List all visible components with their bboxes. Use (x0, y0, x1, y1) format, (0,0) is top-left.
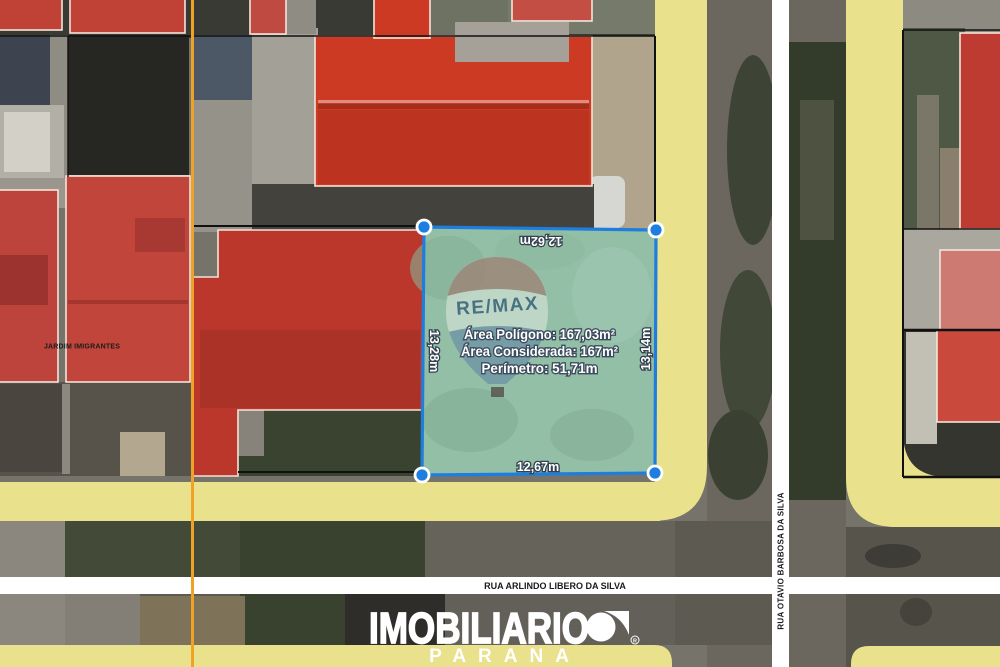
svg-text:Área Considerada: 167m²: Área Considerada: 167m² (461, 344, 618, 359)
svg-text:RUA OTAVIO BARBOSA DA SILVA: RUA OTAVIO BARBOSA DA SILVA (777, 492, 786, 629)
svg-text:RUA ARLINDO LIBERO DA SILVA: RUA ARLINDO LIBERO DA SILVA (484, 581, 626, 591)
svg-text:12,67m: 12,67m (517, 460, 559, 474)
svg-text:JARDIM IMIGRANTES: JARDIM IMIGRANTES (44, 344, 120, 351)
svg-text:12,62m: 12,62m (520, 234, 562, 248)
svg-text:R: R (633, 639, 637, 645)
svg-text:13,14m: 13,14m (639, 328, 653, 370)
svg-text:Área Polígono: 167,03m²: Área Polígono: 167,03m² (464, 327, 615, 342)
svg-text:PARANA: PARANA (429, 646, 581, 667)
svg-text:Perímetro: 51,71m: Perímetro: 51,71m (482, 361, 598, 376)
svg-text:13,28m: 13,28m (427, 330, 441, 372)
